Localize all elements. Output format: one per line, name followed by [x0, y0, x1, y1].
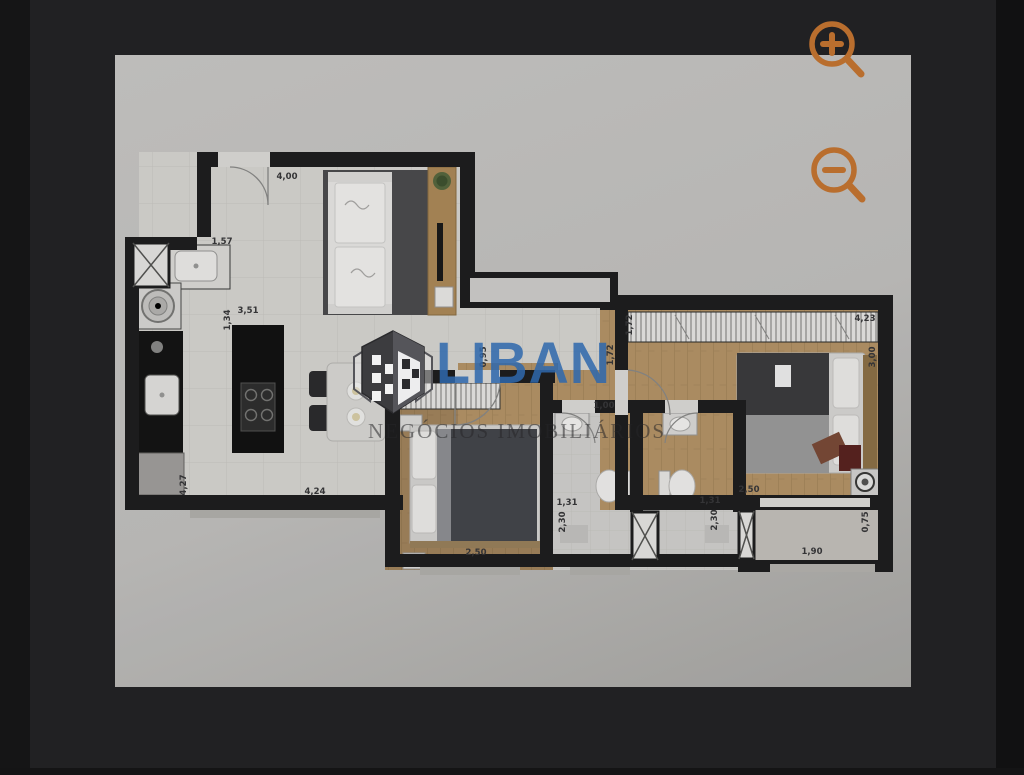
- watermark-tagline: NEGÓCIOS IMOBILIÁRIOS: [368, 419, 668, 444]
- viewer-background: { "viewer": { "background_color": "#2121…: [0, 0, 1024, 775]
- watermark-brand: LIBAN: [436, 334, 657, 396]
- liban-isometric-building-logo: [352, 329, 434, 417]
- liban-logo: [352, 329, 434, 417]
- magnifier-minus-icon: [806, 140, 870, 208]
- magnifier-plus-icon: [804, 14, 868, 82]
- frame-bottom: [0, 768, 1024, 775]
- zoom-out-button[interactable]: [806, 140, 870, 208]
- frame-left: [0, 0, 30, 775]
- frame-right: [996, 0, 1024, 775]
- zoom-in-button[interactable]: [804, 14, 868, 82]
